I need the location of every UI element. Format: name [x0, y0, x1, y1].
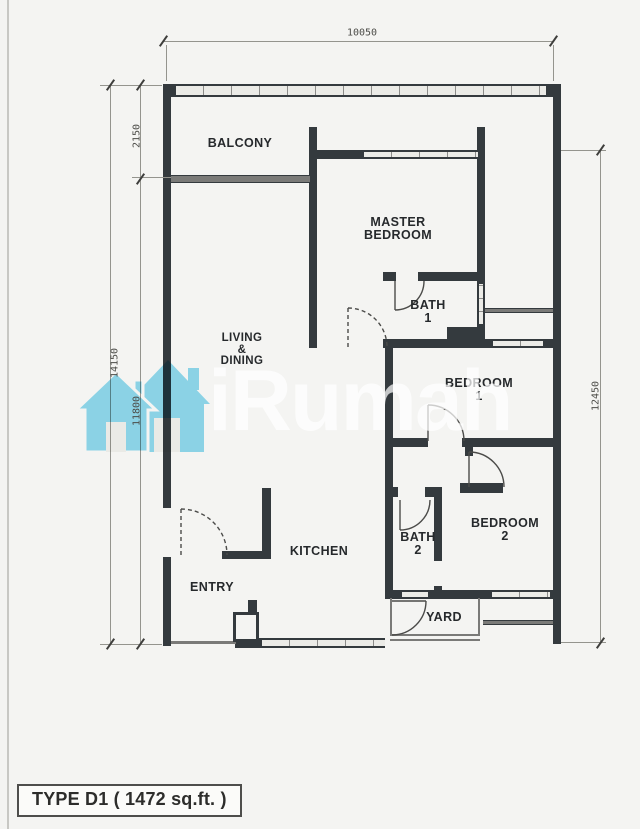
- watermark-brand-text: iRumah: [208, 358, 511, 444]
- entry-label: ENTRY: [190, 581, 234, 594]
- room-label-bath-2: BATH2: [400, 531, 435, 557]
- dimension-left-lower-label: 11800: [132, 396, 143, 426]
- house-front-icon: [76, 372, 156, 452]
- master-bedroom-label-line2: BEDROOM: [364, 229, 432, 242]
- bath1-label-line2: 1: [410, 312, 445, 325]
- balcony-label: BALCONY: [208, 137, 273, 150]
- kitchen-label: KITCHEN: [290, 545, 348, 558]
- door-swing: [392, 601, 426, 635]
- room-label-bedroom-2: BEDROOM2: [471, 517, 539, 543]
- room-label-balcony: BALCONY: [208, 137, 273, 150]
- plan-title-box: TYPE D1 ( 1472 sq.ft. ): [17, 784, 242, 817]
- plan-title: TYPE D1 ( 1472 sq.ft. ): [32, 789, 227, 809]
- bath2-label-line2: 2: [400, 544, 435, 557]
- door-swing-dashed: [348, 308, 387, 347]
- dimension-right-label: 12450: [591, 381, 602, 411]
- dimension-top-label: 10050: [347, 28, 377, 39]
- door-swing-dashed: [181, 509, 227, 555]
- living-label-line1: LIVING: [221, 333, 264, 345]
- room-label-yard: YARD: [426, 611, 462, 624]
- room-label-master-bedroom: MASTERBEDROOM: [364, 216, 432, 242]
- watermark-house-icon: [76, 360, 226, 460]
- bedroom2-label-line2: 2: [471, 530, 539, 543]
- yard-label: YARD: [426, 611, 462, 624]
- dimension-left-outer-label: 14150: [110, 348, 121, 378]
- door-swing: [400, 500, 430, 530]
- room-label-entry: ENTRY: [190, 581, 234, 594]
- room-label-kitchen: KITCHEN: [290, 545, 348, 558]
- room-label-bath-1: BATH1: [410, 299, 445, 325]
- dimension-left-upper-label: 2150: [132, 124, 143, 148]
- door-swing: [469, 452, 504, 487]
